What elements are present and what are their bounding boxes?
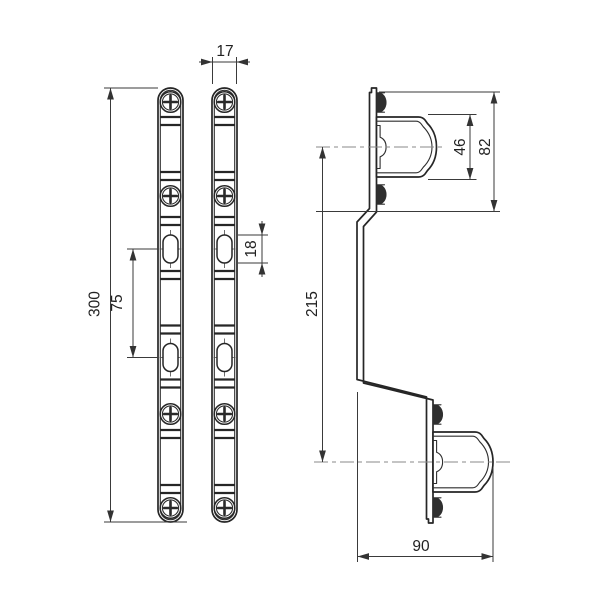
dimension-slot-length: 18 — [238, 221, 268, 277]
technical-drawing-page: 17 300 75 18 46 82 215 — [0, 0, 600, 600]
front-view — [158, 88, 237, 522]
dim-label-clamp-center-distance: 215 — [304, 291, 321, 317]
rail-right — [212, 88, 237, 522]
dimension-clamp-center-distance: 215 — [304, 147, 326, 462]
dim-label-clamp-outer: 82 — [477, 138, 494, 155]
dim-label-slot-length: 18 — [243, 240, 260, 257]
technical-drawing-canvas: 17 300 75 18 46 82 215 — [0, 0, 600, 600]
dim-label-slot-spacing: 75 — [109, 294, 126, 311]
dim-label-bracket-depth: 90 — [412, 538, 430, 555]
dimension-slot-spacing: 75 — [109, 249, 158, 358]
dim-label-rail-length: 300 — [87, 291, 104, 317]
dimension-rail-width: 17 — [199, 43, 250, 84]
rail-left — [158, 88, 183, 522]
dim-label-rail-width: 17 — [216, 43, 233, 60]
dim-label-clamp-inner: 46 — [452, 138, 469, 155]
